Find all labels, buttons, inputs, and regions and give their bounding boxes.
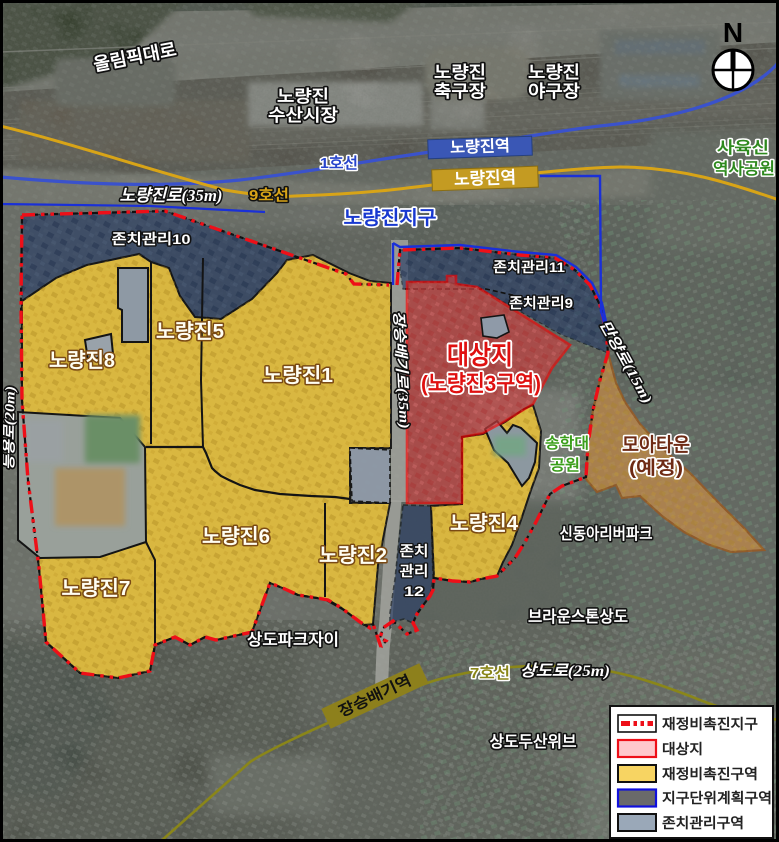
svg-text:노량진5: 노량진5 [156,320,224,343]
svg-text:지구단위계획구역: 지구단위계획구역 [662,790,772,806]
svg-text:대상지: 대상지 [662,741,703,757]
svg-text:야구장: 야구장 [528,82,580,101]
svg-text:노량진4: 노량진4 [450,512,519,535]
svg-text:재정비촉진구역: 재정비촉진구역 [662,766,758,782]
svg-text:노량진7: 노량진7 [62,577,131,600]
svg-text:노량진: 노량진 [528,63,580,82]
svg-text:수산시장: 수산시장 [268,106,338,125]
svg-text:노량진: 노량진 [434,63,486,82]
svg-text:노량진지구: 노량진지구 [344,207,437,229]
svg-text:대상지: 대상지 [447,340,513,370]
svg-text:N: N [723,17,743,48]
svg-text:1호선: 1호선 [320,155,358,172]
svg-text:존치관리10: 존치관리10 [112,231,191,247]
svg-text:노량진역: 노량진역 [454,168,517,189]
svg-text:모아타운: 모아타운 [622,434,690,456]
svg-text:역사공원: 역사공원 [713,160,775,178]
svg-text:송학대: 송학대 [545,435,589,452]
svg-text:상도파크자이: 상도파크자이 [247,631,339,649]
svg-text:존치관리11: 존치관리11 [493,259,565,275]
svg-text:(예정): (예정) [629,458,683,478]
svg-text:노량진: 노량진 [277,87,329,106]
svg-text:9호선: 9호선 [249,187,289,204]
svg-text:12: 12 [404,583,424,599]
svg-text:존치관리구역: 존치관리구역 [662,815,744,831]
svg-text:상도로(25m): 상도로(25m) [520,662,610,680]
svg-text:노량진로(35m): 노량진로(35m) [120,186,223,205]
svg-text:존치관리9: 존치관리9 [509,295,573,311]
svg-text:축구장: 축구장 [434,82,486,101]
svg-text:등용로(20m): 등용로(20m) [1,386,18,470]
svg-text:노량진2: 노량진2 [319,544,387,567]
svg-text:신동아리버파크: 신동아리버파크 [560,525,653,543]
svg-text:재정비촉진지구: 재정비촉진지구 [662,716,758,732]
svg-text:(노량진3구역): (노량진3구역) [421,371,541,396]
svg-text:브라운스톤상도: 브라운스톤상도 [528,608,628,626]
svg-text:노량진6: 노량진6 [202,525,270,548]
svg-text:노량진8: 노량진8 [49,349,115,372]
svg-text:노량진역: 노량진역 [450,136,511,157]
svg-text:사육신: 사육신 [717,139,769,157]
svg-text:7호선: 7호선 [470,665,510,682]
svg-text:존치: 존치 [400,543,429,559]
svg-text:관리: 관리 [400,563,429,579]
svg-text:공원: 공원 [550,457,580,474]
svg-text:노량진1: 노량진1 [263,364,333,387]
svg-text:상도두산위브: 상도두산위브 [490,733,577,751]
